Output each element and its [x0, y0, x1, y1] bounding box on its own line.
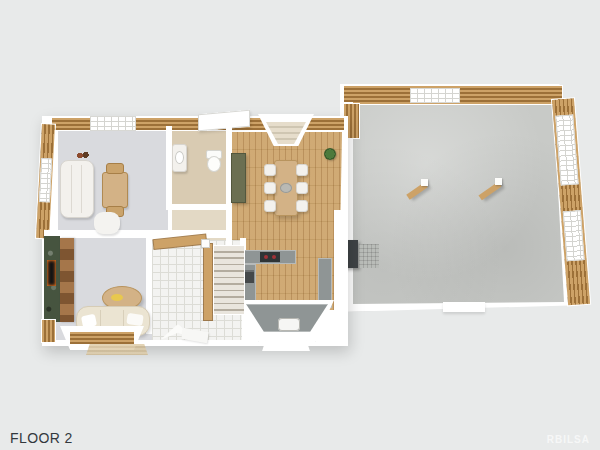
sofa-cushion-line-1	[71, 165, 72, 213]
tall-cabinet	[231, 153, 246, 203]
dining-chair-right-2	[296, 182, 308, 194]
cooktop	[260, 252, 280, 262]
living-room-left-window	[39, 158, 52, 203]
brand-watermark: RBILSA	[547, 434, 590, 445]
staircase	[214, 246, 244, 314]
family-bay-sill	[70, 332, 134, 344]
garage-floor-mat	[359, 244, 379, 268]
garage-right-window-upper	[555, 114, 578, 185]
burner-1	[264, 255, 268, 259]
coffee-table-decor	[111, 294, 123, 301]
living-room-sofa	[60, 160, 94, 218]
living-room-top-window	[90, 116, 136, 131]
potted-plant	[324, 148, 336, 160]
dining-chair-left-1	[264, 164, 276, 176]
fireplace-mantel-shelves	[60, 238, 74, 322]
dining-chair-right-3	[296, 200, 308, 212]
bathroom-sink-basin	[175, 151, 184, 164]
garage-right-window-lower	[563, 210, 585, 261]
garage-floor	[352, 102, 564, 304]
dining-table	[274, 160, 298, 216]
fireplace-insert	[47, 260, 56, 286]
kitchen-garage-wall	[334, 210, 342, 310]
garage-door-threshold	[443, 302, 485, 312]
living-side-table	[102, 172, 128, 208]
garage-skylight-window	[410, 88, 460, 103]
dining-centerpiece	[280, 183, 292, 193]
kitchen-sink	[278, 318, 300, 331]
dining-chair-left-3	[264, 200, 276, 212]
railing-newel-post	[202, 240, 209, 247]
garage-brace-1-cap	[421, 179, 428, 186]
sofa-cushion-line-2	[81, 165, 82, 213]
stair-railing-side	[204, 244, 212, 320]
living-chair-top	[106, 163, 124, 174]
toilet	[206, 150, 220, 171]
garage-brace-2-cap	[495, 178, 502, 185]
bathroom-bottom-wall	[166, 204, 228, 210]
dining-bay-window-steps	[266, 122, 306, 144]
kitchen-porch-step	[262, 340, 310, 351]
sofa-side-decor	[76, 150, 90, 161]
house-lower-left-stud-wall	[42, 320, 55, 342]
oven	[244, 270, 254, 283]
floorplan-3d-view[interactable]: FLOOR 2 RBILSA	[0, 0, 600, 450]
dining-chair-left-2	[264, 182, 276, 194]
living-room-rug	[94, 212, 120, 234]
dining-chair-right-1	[296, 164, 308, 176]
bathroom-sink	[172, 144, 187, 172]
burner-2	[272, 255, 276, 259]
floor-label: FLOOR 2	[10, 430, 73, 446]
family-sofa-pillow	[126, 313, 143, 326]
exterior-deck	[86, 344, 148, 355]
toilet-bowl	[207, 156, 221, 172]
